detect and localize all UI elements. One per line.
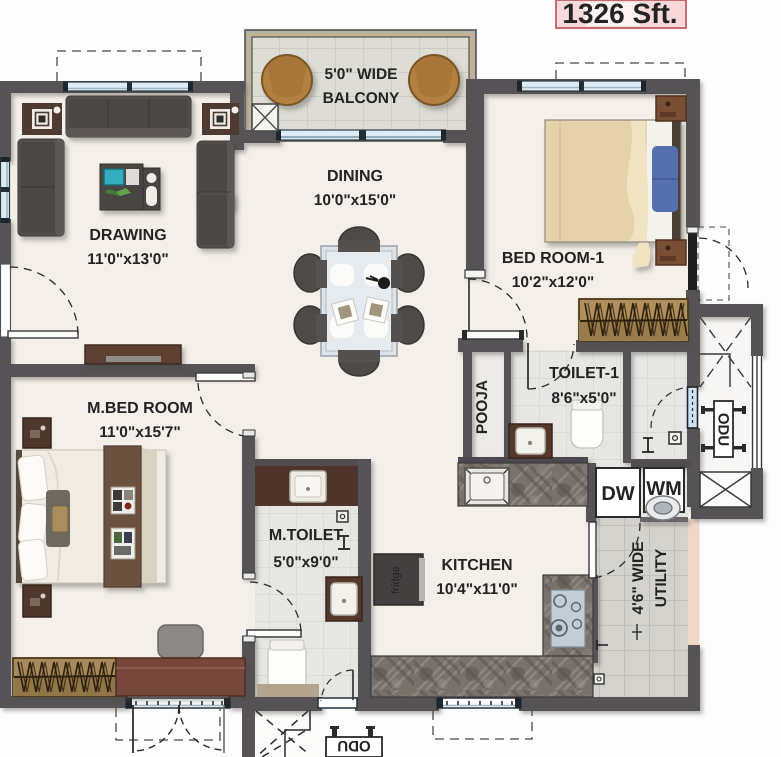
svg-text:BALCONY: BALCONY (323, 90, 400, 107)
svg-text:11'0"x13'0": 11'0"x13'0" (87, 251, 169, 268)
svg-text:10'4"x11'0": 10'4"x11'0" (436, 581, 518, 598)
svg-text:TOILET-1: TOILET-1 (549, 365, 619, 382)
svg-text:ODU: ODU (715, 413, 732, 446)
svg-text:DW: DW (601, 483, 634, 505)
svg-text:11'0"x15'7": 11'0"x15'7" (99, 424, 181, 441)
svg-text:BED ROOM-1: BED ROOM-1 (502, 250, 604, 267)
svg-text:WM: WM (646, 478, 682, 500)
svg-text:fridge: fridge (390, 566, 402, 594)
svg-text:10'0"x15'0": 10'0"x15'0" (314, 192, 396, 209)
svg-text:UTILITY: UTILITY (653, 548, 670, 607)
svg-text:1326 Sft.: 1326 Sft. (562, 0, 677, 29)
svg-text:M.TOILET: M.TOILET (269, 527, 344, 544)
svg-text:ODU: ODU (337, 737, 370, 754)
svg-text:5'0"x9'0": 5'0"x9'0" (273, 554, 338, 571)
svg-text:10'2"x12'0": 10'2"x12'0" (512, 274, 594, 291)
svg-text:M.BED ROOM: M.BED ROOM (87, 400, 193, 417)
svg-text:POOJA: POOJA (474, 380, 491, 434)
svg-text:8'6"x5'0": 8'6"x5'0" (551, 390, 616, 407)
svg-text:4'6" WIDE: 4'6" WIDE (630, 541, 647, 614)
svg-text:DRAWING: DRAWING (89, 227, 166, 244)
svg-text:5'0" WIDE: 5'0" WIDE (324, 66, 397, 83)
svg-text:DINING: DINING (327, 168, 383, 185)
svg-text:KITCHEN: KITCHEN (441, 557, 512, 574)
